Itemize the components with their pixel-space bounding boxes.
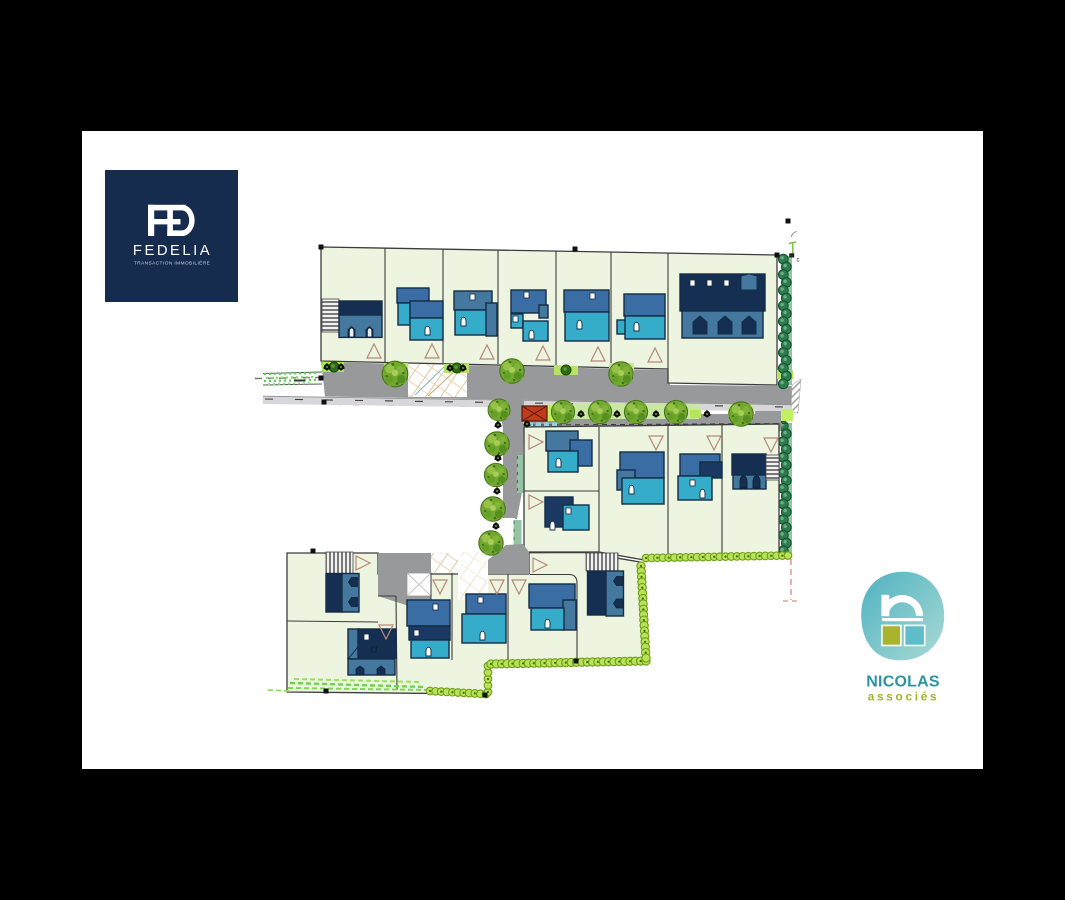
svg-text:c: c xyxy=(797,258,800,264)
svg-text:TRANSACTION IMMOBILIÈRE: TRANSACTION IMMOBILIÈRE xyxy=(134,259,211,266)
svg-text:associés: associés xyxy=(868,689,939,703)
svg-text:FEDELIA: FEDELIA xyxy=(133,243,212,259)
svg-text:NICOLAS: NICOLAS xyxy=(866,674,940,691)
